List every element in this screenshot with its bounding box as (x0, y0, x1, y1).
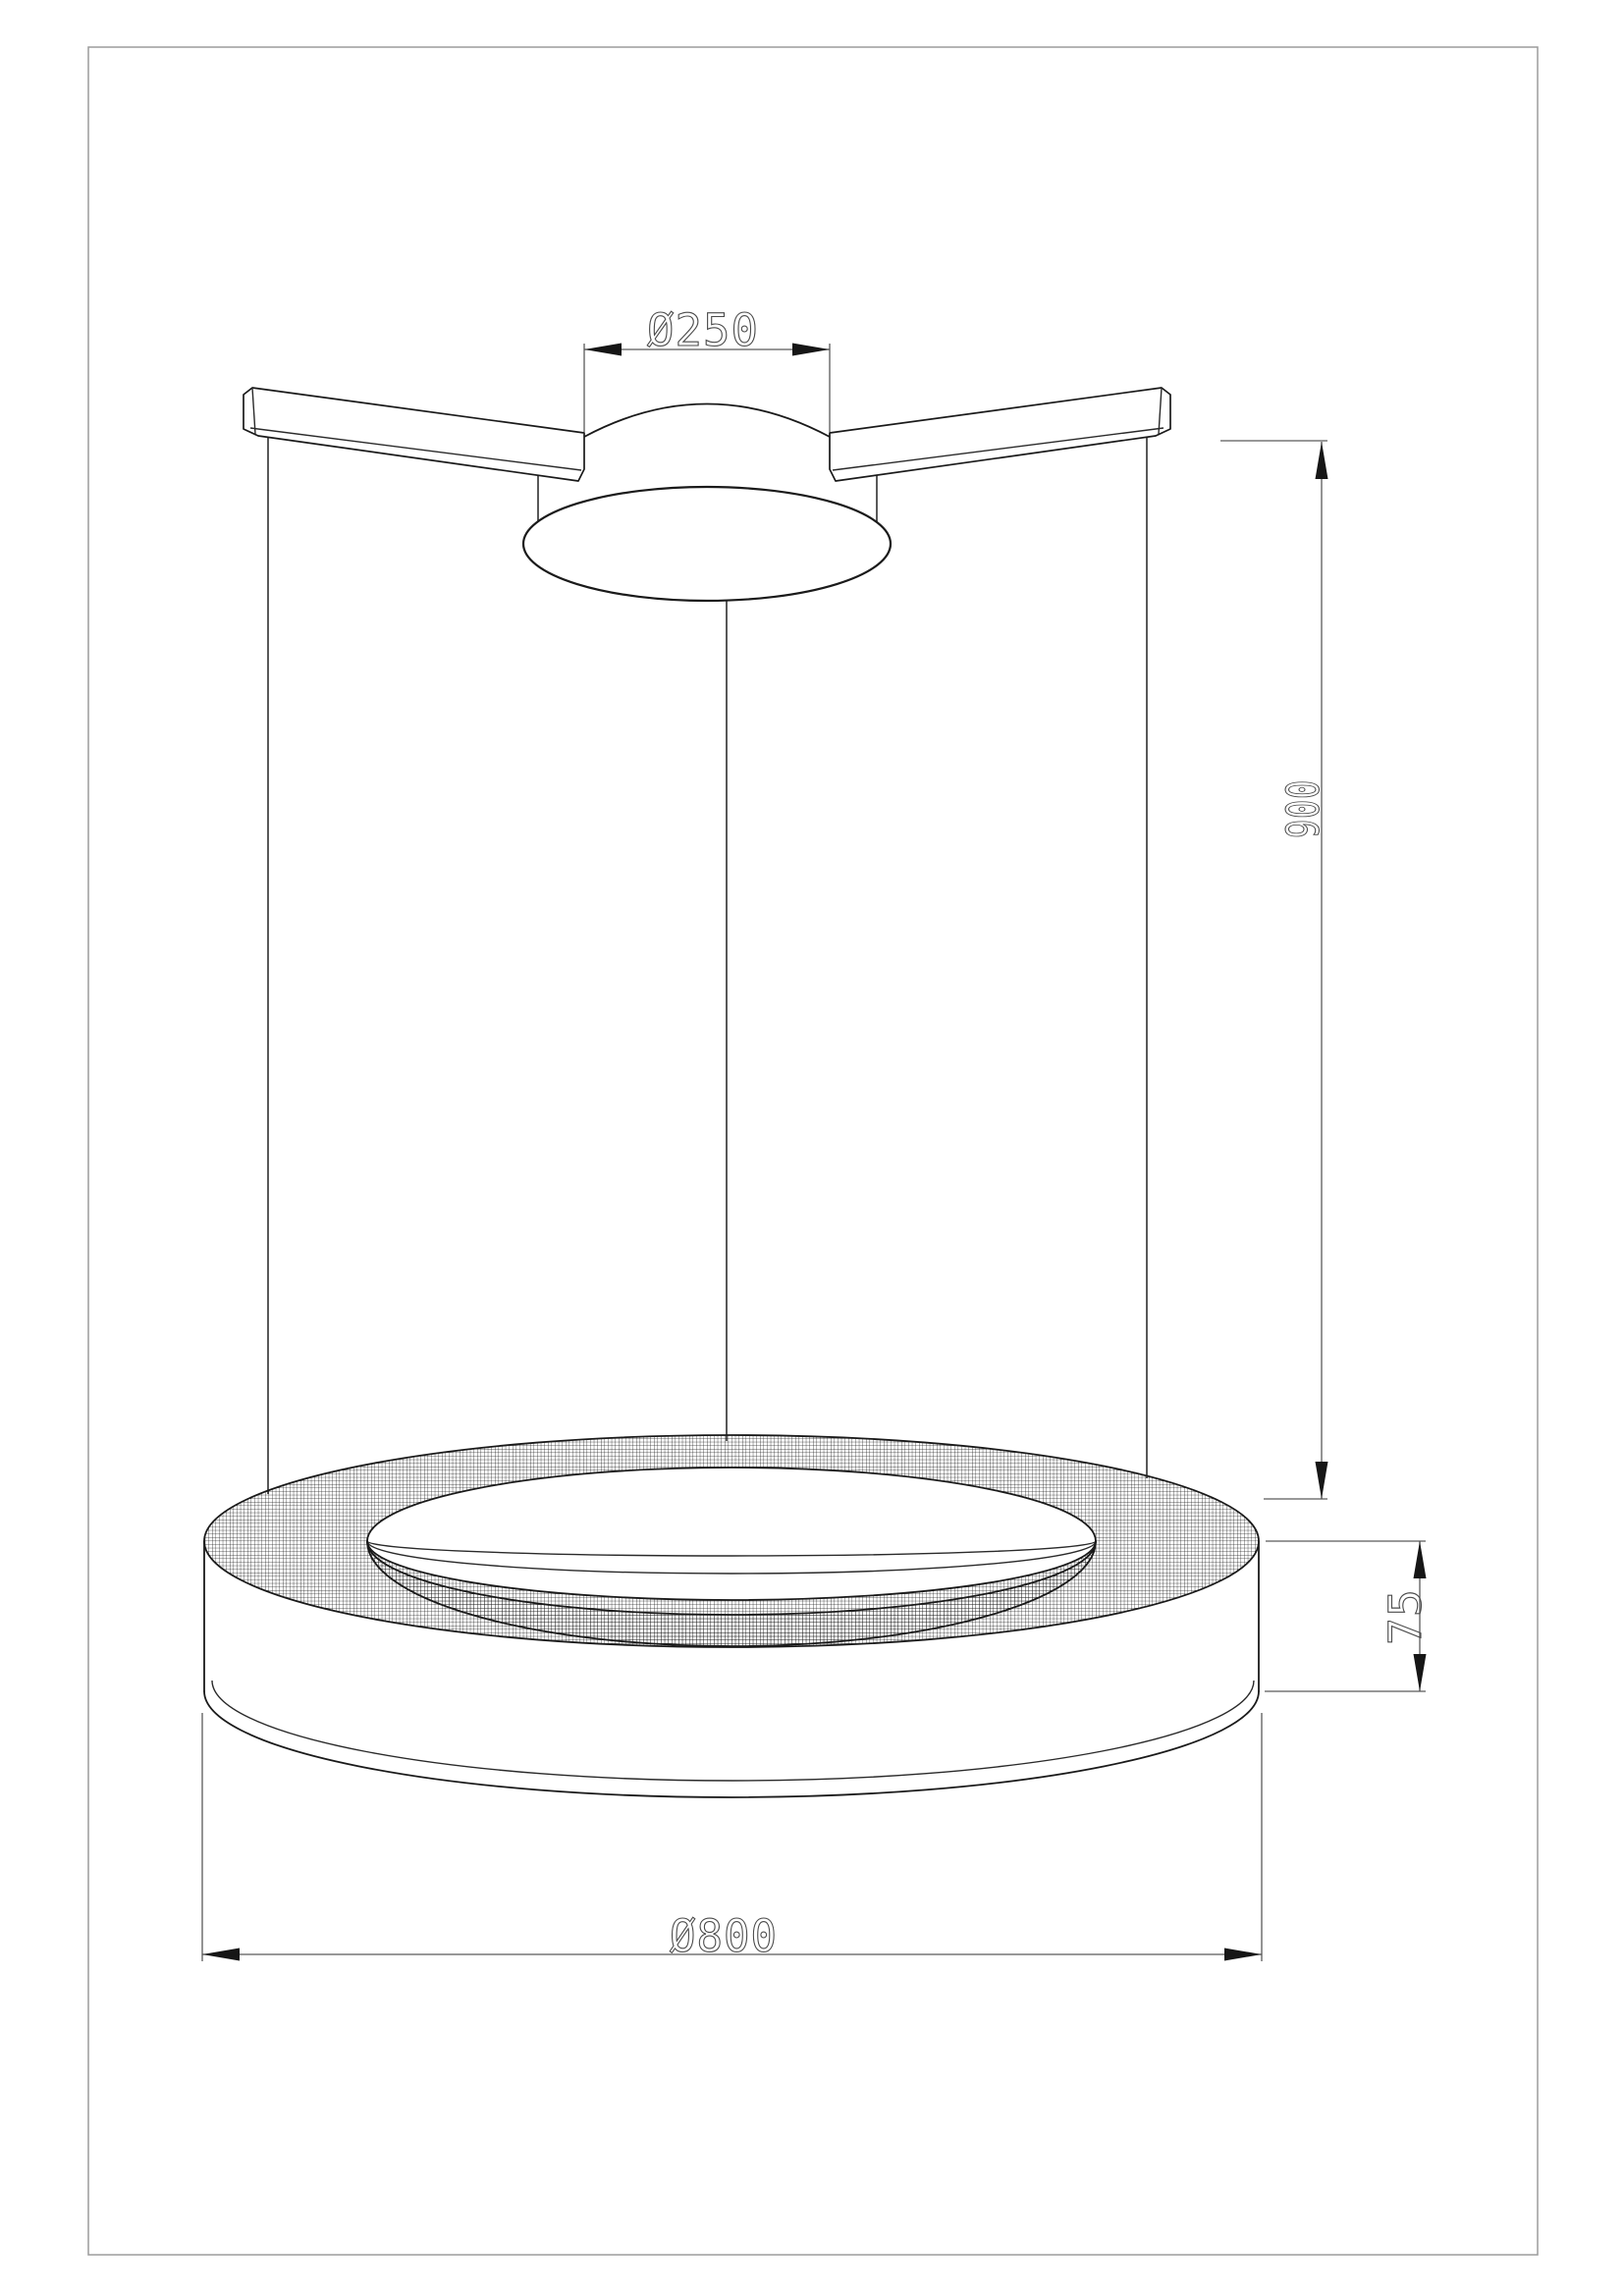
canopy-dome-arc (584, 404, 830, 438)
technical-drawing: Ø250 900 75 Ø800 (0, 0, 1624, 2296)
dimension-label-suspension-height: 900 (1277, 779, 1329, 838)
suspension-cables (268, 437, 1147, 1494)
arrowhead-down (1316, 1462, 1328, 1499)
ring-inner-lip-arc-2 (367, 1541, 1096, 1574)
arrowhead-right (792, 344, 830, 356)
arrowhead-right (1224, 1949, 1262, 1961)
dimension-label-ring-diameter: Ø800 (670, 1910, 778, 1962)
arrowhead-up (1414, 1541, 1427, 1578)
arm-right-body (830, 388, 1170, 481)
dimension-label-ring-height: 75 (1380, 1588, 1432, 1645)
mounting-arm-right (830, 388, 1170, 481)
arrowhead-down (1414, 1654, 1427, 1691)
dimension-canopy-diameter: Ø250 (584, 304, 830, 432)
arrowhead-up (1316, 442, 1328, 479)
page-border (88, 47, 1538, 2255)
mounting-arm-left (244, 388, 584, 481)
ring-bottom-outer-arc (204, 1691, 1259, 1797)
arrowhead-left (202, 1949, 240, 1961)
arrowhead-left (584, 344, 622, 356)
ring-inner-lip-arc-1 (367, 1541, 1096, 1556)
dimension-label-canopy-diameter: Ø250 (647, 304, 759, 356)
canopy-bottom-ellipse (523, 487, 891, 601)
arm-left-body (244, 388, 584, 481)
dimension-ring-height: 75 (1265, 1541, 1432, 1691)
led-ring (204, 1435, 1259, 1797)
dimension-suspension-height: 900 (1220, 441, 1329, 1499)
ring-bottom-lip-arc (212, 1681, 1254, 1781)
